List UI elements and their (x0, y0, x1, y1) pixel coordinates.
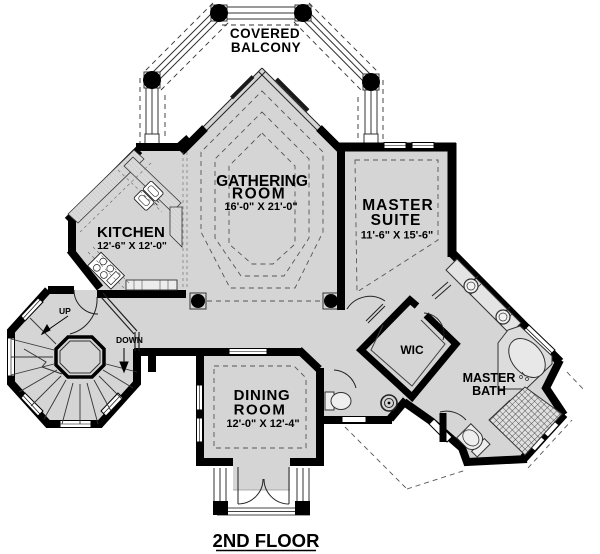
svg-text:DOWN: DOWN (116, 335, 143, 345)
svg-text:KITCHEN: KITCHEN (97, 224, 165, 241)
svg-text:12'-6" X 12'-0": 12'-6" X 12'-0" (97, 240, 167, 252)
svg-text:MASTER: MASTER (463, 371, 516, 385)
svg-text:16'-0" X 21'-0": 16'-0" X 21'-0" (224, 201, 297, 213)
svg-text:COVERED: COVERED (230, 26, 300, 41)
svg-text:BALCONY: BALCONY (231, 40, 301, 55)
svg-text:ROOM: ROOM (232, 186, 286, 203)
svg-text:12'-0" X 12'-4": 12'-0" X 12'-4" (226, 418, 299, 430)
svg-text:SUITE: SUITE (371, 212, 422, 229)
svg-text:2ND FLOOR: 2ND FLOOR (213, 530, 320, 551)
svg-text:11'-6" X 15'-6": 11'-6" X 15'-6" (361, 230, 434, 242)
svg-text:BATH: BATH (472, 384, 506, 398)
svg-text:UP: UP (59, 306, 71, 316)
svg-text:WIC: WIC (400, 343, 424, 357)
svg-text:ROOM: ROOM (234, 402, 287, 419)
